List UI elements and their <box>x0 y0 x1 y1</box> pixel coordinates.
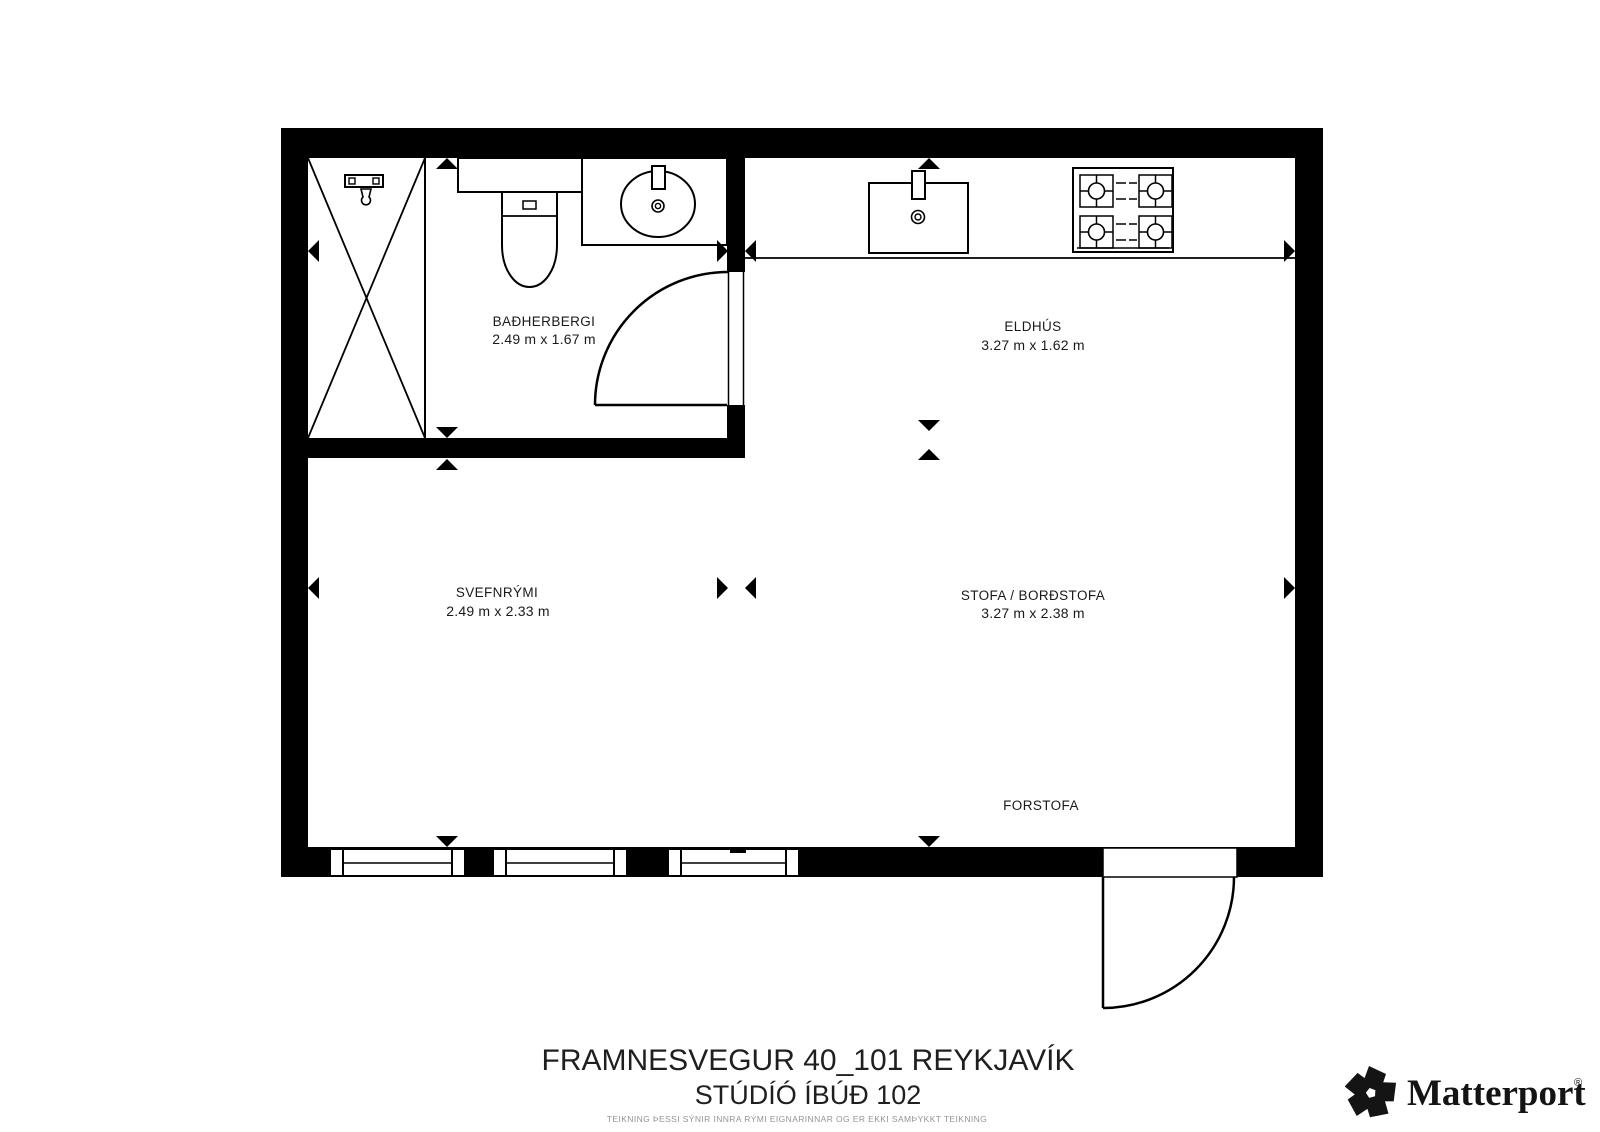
plan-disclaimer: TEIKNING ÞESSI SÝNIR INNRA RÝMI EIGNARIN… <box>607 1114 987 1124</box>
window-icon <box>668 849 799 876</box>
entrance-doorway <box>1103 848 1237 877</box>
room-label-forstofa: FORSTOFA <box>1003 798 1079 813</box>
matterport-wordmark: Matterport <box>1407 1073 1586 1114</box>
measurement-arrow-icon <box>918 449 940 460</box>
room-label-badherbergi: BAÐHERBERGI <box>493 314 596 329</box>
measurement-arrow-icon <box>308 240 319 262</box>
measurement-arrow-icon <box>436 158 458 169</box>
floorplan-drawing: BAÐHERBERGI 2.49 m x 1.67 m ELDHÚS 3.27 … <box>0 0 1600 1132</box>
window-icon <box>330 849 465 876</box>
entrance-door-swing-icon <box>1103 877 1234 1008</box>
measurement-arrow-icon <box>918 158 940 169</box>
matterport-logo-icon: Matterport ® <box>1343 1066 1587 1124</box>
room-dims-svefnrymi: 2.49 m x 2.33 m <box>446 603 549 619</box>
measurement-arrow-icon <box>717 577 728 599</box>
floorplan-page: BAÐHERBERGI 2.49 m x 1.67 m ELDHÚS 3.27 … <box>0 0 1600 1132</box>
window-icon <box>493 849 627 876</box>
room-label-svefnrymi: SVEFNRÝMI <box>456 585 538 600</box>
measurement-arrow-icon <box>1284 577 1295 599</box>
measurement-arrow-icon <box>436 836 458 847</box>
stove-icon <box>1073 168 1173 252</box>
bathroom-sink-icon <box>582 158 727 245</box>
measurement-arrow-icon <box>436 427 458 438</box>
bathroom-door-swing-icon <box>595 272 728 405</box>
room-label-eldhus: ELDHÚS <box>1004 319 1061 334</box>
plan-title-unit: STÚDÍÓ ÍBÚÐ 102 <box>695 1079 922 1110</box>
room-dims-badherbergi: 2.49 m x 1.67 m <box>492 331 595 347</box>
room-dims-stofa: 3.27 m x 2.38 m <box>981 605 1084 621</box>
registered-mark: ® <box>1574 1077 1582 1089</box>
measurement-arrow-icon <box>308 577 319 599</box>
kitchen-sink-icon <box>869 171 968 253</box>
toilet-icon <box>458 158 582 287</box>
measurement-arrows <box>308 158 1295 847</box>
shower-icon <box>308 158 425 438</box>
bathroom-doorway <box>727 272 745 405</box>
measurement-arrow-icon <box>918 836 940 847</box>
measurement-arrow-icon <box>436 459 458 470</box>
room-label-stofa: STOFA / BORÐSTOFA <box>961 588 1105 603</box>
room-dims-eldhus: 3.27 m x 1.62 m <box>981 337 1084 353</box>
plan-title-address: FRAMNESVEGUR 40_101 REYKJAVÍK <box>542 1044 1075 1077</box>
measurement-arrow-icon <box>745 577 756 599</box>
measurement-arrow-icon <box>918 420 940 431</box>
